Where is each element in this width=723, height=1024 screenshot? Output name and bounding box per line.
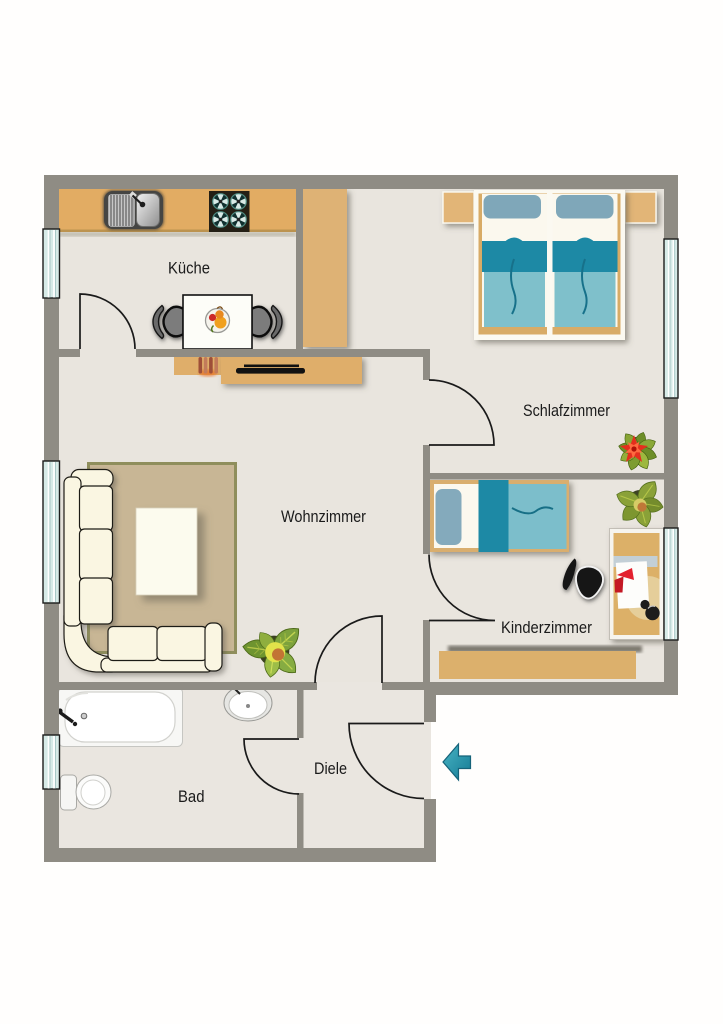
svg-text:Schlafzimmer: Schlafzimmer — [523, 402, 610, 420]
svg-text:Diele: Diele — [314, 760, 347, 778]
svg-text:Kinderzimmer: Kinderzimmer — [501, 619, 592, 637]
svg-text:Wohnzimmer: Wohnzimmer — [281, 508, 366, 526]
svg-text:Bad: Bad — [178, 788, 205, 806]
svg-text:Küche: Küche — [168, 260, 210, 278]
